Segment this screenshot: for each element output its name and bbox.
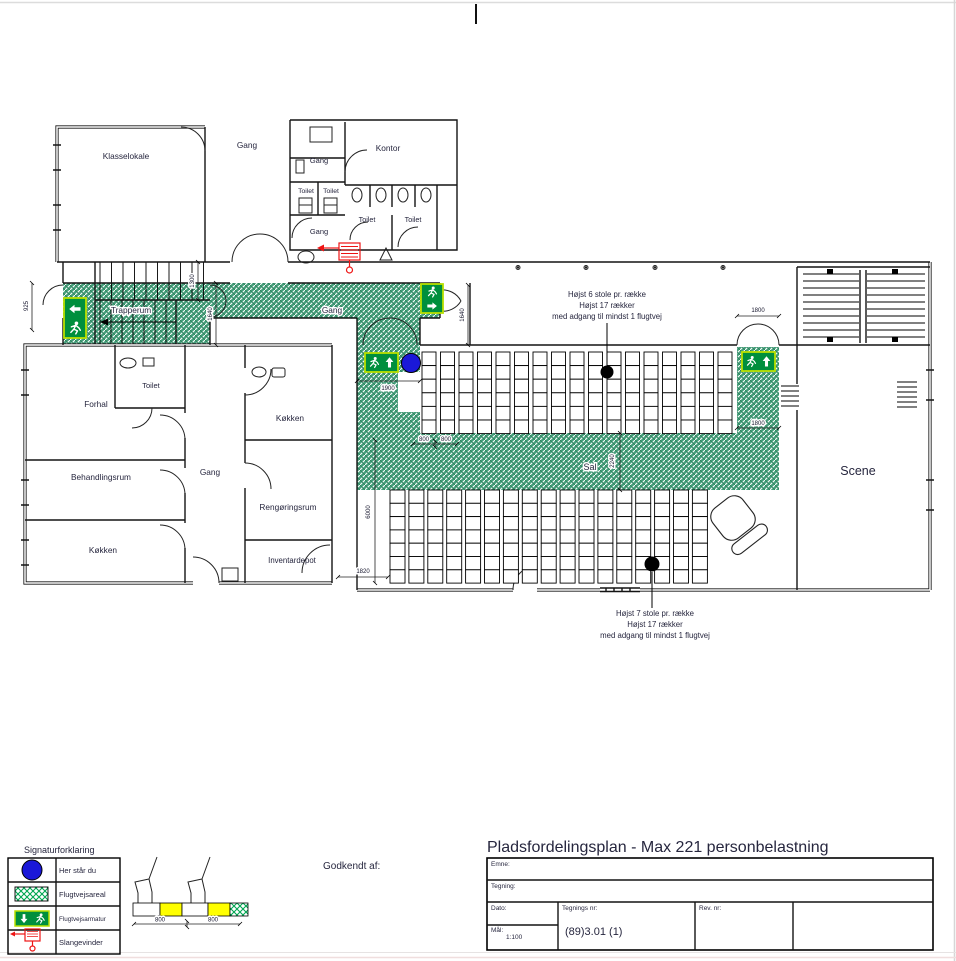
dim-800-a: 800 [419,437,430,443]
rev-nr-label: Rev. nr: [699,905,721,912]
legend-escape-area-swatch [15,887,48,901]
room-label-behandlingsrum: Behandlingsrum [71,472,131,482]
upper-note-line2: Højst 17 rækker [579,301,635,310]
floor-plan-drawing: 925 1300 1640 1640 1900 1800 1800 2240 6… [0,0,956,961]
room-label-toilet-c: Toilet [359,215,376,224]
hose-reel-icon [317,243,360,273]
upper-note-dot [601,366,614,379]
room-label-gang-corridor: Gang [322,305,343,315]
legend-dim-800-1: 800 [155,918,166,924]
dim-1800-door: 1800 [751,308,765,314]
room-label-toilet-forhal: Toilet [142,381,160,390]
title-block: Pladsfordelingsplan - Max 221 personbela… [487,839,933,950]
piano-icon [705,490,770,557]
dim-1820: 1820 [356,569,370,575]
dim-800-b: 800 [441,437,452,443]
room-label-gang-left: Gang [200,467,221,477]
seat-block-upper [422,352,732,434]
dim-1640-a: 1640 [208,307,214,321]
you-are-here-dot [402,354,421,373]
lower-note-line3: med adgang til mindst 1 flugtvej [600,631,710,640]
stage-step-left [781,386,799,406]
upper-note-line3: med adgang til mindst 1 flugtvej [552,312,662,321]
room-label-gang-wc: Gang [310,227,328,236]
dim-2240: 2240 [610,454,616,468]
outdoor-stair-landings [827,269,898,342]
dim-1900: 1900 [381,386,395,392]
room-label-kontor: Kontor [376,143,401,153]
legend-dim-800-2: 800 [208,918,219,924]
seat-block-lower [390,490,707,583]
room-label-koekken-right: Køkken [276,413,305,423]
upper-note-line1: Højst 6 stole pr. række [568,290,646,299]
drawing-title: Pladsfordelingsplan - Max 221 personbela… [487,839,829,856]
outdoor-stair-left [803,274,859,337]
door-swing-clearing [398,372,421,412]
approved-by-label: Godkendt af: [323,861,380,872]
room-label-inventardepot: Inventardepot [268,556,317,565]
lower-note-dot [645,557,660,572]
legend-you-are-here-dot [22,860,42,880]
legend-label-flugtvejsarmatur: Flugtvejsarmatur [59,916,106,923]
lower-note-line1: Højst 7 stole pr. række [616,609,694,618]
stage-step-right [897,382,917,407]
room-label-scene: Scene [840,464,875,478]
dim-925: 925 [24,300,30,311]
legend-label-her-staar-du: Her står du [59,866,96,875]
room-label-toilet-b: Toilet [323,188,339,195]
room-label-rengoeringsrum: Rengøringsrum [259,502,316,512]
plan-sheet: 925 1300 1640 1640 1900 1800 1800 2240 6… [0,0,956,961]
exit-sign-corridor-east-icon [421,284,443,313]
dim-6000: 6000 [366,505,372,519]
room-label-gang-small: Gang [310,156,328,165]
room-label-koekken-bottom: Køkken [89,545,118,555]
room-label-sal: Sal [583,462,596,472]
outdoor-stair-right [867,274,925,337]
maal-value: 1:100 [506,934,523,941]
exit-sign-hall-west-icon [365,353,398,372]
room-label-toilet-d: Toilet [405,215,422,224]
room-label-trapperum: Trapperum [111,305,151,315]
dim-1300: 1300 [190,274,196,288]
legend-hose-reel-icon [10,929,40,951]
lower-note-line2: Højst 17 rækker [627,620,683,629]
chair-spacing-diagram: 800 800 [133,857,248,927]
legend-label-flugtvejsareal: Flugtvejsareal [59,890,106,899]
tegning-label: Tegning: [491,883,516,890]
legend-label-slangevinder: Slangevinder [59,938,103,947]
legend-exit-sign-icon [15,911,49,926]
room-label-forhal: Forhal [84,399,108,409]
room-label-toilet-a: Toilet [298,188,314,195]
emne-label: Emne: [491,861,510,868]
exit-sign-west-icon [64,298,86,338]
exit-sign-hall-east-icon [742,352,775,371]
legend: Signaturforklaring Her står du Flugtvejs… [8,845,248,954]
legend-title: Signaturforklaring [24,845,95,855]
maal-label: Mål: [491,926,503,934]
dim-1640-b: 1640 [460,308,466,322]
dim-1800-strip: 1800 [751,421,765,427]
room-label-klasselokale: Klasselokale [103,151,150,161]
tegnings-nr-label: Tegnings nr: [562,905,598,912]
dato-label: Dato: [491,905,507,912]
tegnings-nr-value: (89)3.01 (1) [565,926,622,938]
room-label-gang-top: Gang [237,140,258,150]
